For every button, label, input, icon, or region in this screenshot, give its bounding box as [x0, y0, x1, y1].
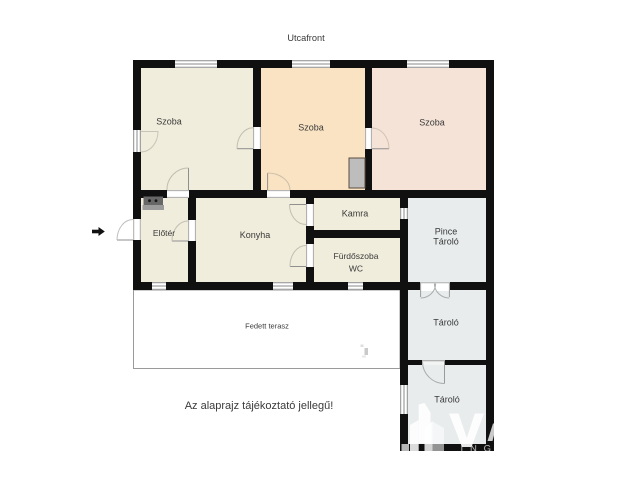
- svg-text:Fürdőszoba: Fürdőszoba: [334, 251, 379, 261]
- svg-text:Szoba: Szoba: [419, 118, 445, 128]
- svg-text:Tároló: Tároló: [433, 237, 459, 247]
- svg-text:WC: WC: [349, 264, 363, 274]
- svg-text:Tároló: Tároló: [434, 395, 460, 405]
- svg-text:Utcafront: Utcafront: [287, 33, 325, 43]
- svg-text:Előtér: Előtér: [153, 228, 175, 238]
- svg-text:ING: ING: [461, 444, 498, 455]
- svg-text:Szoba: Szoba: [298, 123, 324, 133]
- svg-text:Pince: Pince: [435, 227, 458, 237]
- svg-text:Fedett terasz: Fedett terasz: [245, 322, 289, 331]
- svg-text:Kamra: Kamra: [342, 209, 369, 219]
- svg-text:Az alaprajz tájékoztató jelleg: Az alaprajz tájékoztató jellegű!: [185, 400, 334, 412]
- svg-text:Szoba: Szoba: [156, 117, 182, 127]
- svg-text:Konyha: Konyha: [240, 230, 271, 240]
- svg-text:Tároló: Tároló: [433, 318, 459, 328]
